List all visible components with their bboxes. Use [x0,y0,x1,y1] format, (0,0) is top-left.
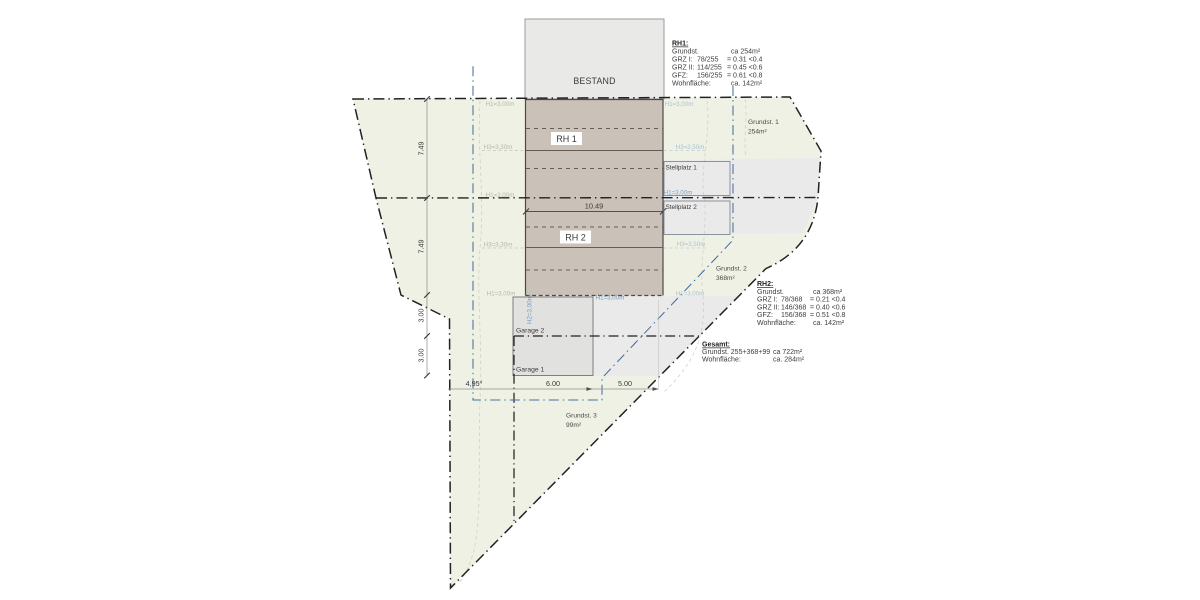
svg-text:99m²: 99m² [566,422,582,429]
svg-text:H3=3,50m: H3=3,50m [676,144,705,151]
svg-text:= 0.31 <0.4: = 0.31 <0.4 [727,57,763,64]
svg-text:ca. 284m²: ca. 284m² [773,357,805,364]
svg-text:H2=3,00m: H2=3,00m [527,295,534,324]
svg-text:Wohnfläche:: Wohnfläche: [702,357,741,364]
svg-text:3.00: 3.00 [417,309,426,323]
svg-text:GRZ I:: GRZ I: [757,297,778,304]
svg-text:H1=3,00m: H1=3,00m [486,101,515,108]
svg-text:Wohnfläche:: Wohnfläche: [672,81,711,88]
svg-text:RH2:: RH2: [757,281,773,288]
svg-text:Grundst. 1: Grundst. 1 [748,119,779,126]
svg-text:156/368: 156/368 [781,312,806,319]
svg-text:RH 1: RH 1 [556,134,577,144]
svg-text:Grundst.: Grundst. [757,289,784,296]
svg-text:H3=3,30m: H3=3,30m [484,242,513,249]
svg-text:ca 254m²: ca 254m² [731,49,761,56]
svg-text:Grundst. 2: Grundst. 2 [716,266,747,273]
svg-text:H1=3,00m: H1=3,00m [665,101,694,108]
svg-text:Stellplatz 2: Stellplatz 2 [666,204,698,211]
svg-text:ca. 142m²: ca. 142m² [731,81,763,88]
svg-text:GRZ II:: GRZ II: [757,304,780,311]
svg-text:78/368: 78/368 [781,297,803,304]
svg-text:GFZ:: GFZ: [672,73,688,80]
svg-text:7.49: 7.49 [417,240,426,254]
svg-text:H1=3,00m: H1=3,00m [487,291,516,298]
svg-text:H1=3,00m: H1=3,00m [664,190,693,197]
svg-text:3.00: 3.00 [417,349,426,363]
svg-text:368m²: 368m² [716,275,735,282]
svg-text:5.00: 5.00 [618,379,632,388]
svg-text:ca 722m²: ca 722m² [773,349,803,356]
svg-text:146/368: 146/368 [781,304,806,311]
svg-text:114/255: 114/255 [697,65,722,72]
svg-text:10.49: 10.49 [585,202,604,211]
svg-text:BESTAND: BESTAND [573,76,615,86]
svg-text:H1=3,00m: H1=3,00m [486,192,515,199]
svg-text:254m²: 254m² [748,129,767,136]
svg-text:Gesamt:: Gesamt: [702,342,730,349]
svg-text:= 0.51 <0.8: = 0.51 <0.8 [810,312,846,319]
svg-text:ca. 142m²: ca. 142m² [813,320,845,327]
svg-text:Wohnfläche:: Wohnfläche: [757,320,796,327]
svg-text:6.00: 6.00 [546,379,560,388]
svg-text:GRZ II:: GRZ II: [672,65,695,72]
svg-text:= 0.21 <0.4: = 0.21 <0.4 [810,297,846,304]
svg-text:Grundst. 255+368+99: Grundst. 255+368+99 [702,349,770,356]
svg-text:GRZ I:: GRZ I: [672,57,693,64]
svg-text:Grundst. 3: Grundst. 3 [566,413,597,420]
svg-text:H3=3,50m: H3=3,50m [677,241,706,248]
svg-text:Garage 1: Garage 1 [516,367,545,374]
svg-text:H1=3,00m: H1=3,00m [596,295,625,302]
svg-text:156/255: 156/255 [697,73,722,80]
svg-text:H1=3,00m: H1=3,00m [676,291,705,298]
svg-text:Grundst.: Grundst. [672,49,699,56]
svg-text:= 0.61 <0.8: = 0.61 <0.8 [727,73,763,80]
svg-text:Stellplatz 1: Stellplatz 1 [666,165,698,172]
svg-text:RH1:: RH1: [672,41,688,48]
svg-text:ca 368m²: ca 368m² [813,289,843,296]
svg-text:GFZ:: GFZ: [757,312,773,319]
svg-text:7.49: 7.49 [417,142,426,156]
svg-text:H3=3,30m: H3=3,30m [484,144,513,151]
svg-text:Garage 2: Garage 2 [516,328,545,335]
svg-text:RH 2: RH 2 [565,233,586,243]
svg-text:= 0.45 <0.6: = 0.45 <0.6 [727,65,763,72]
svg-text:78/255: 78/255 [697,57,719,64]
svg-text:= 0.40 <0.6: = 0.40 <0.6 [810,304,846,311]
